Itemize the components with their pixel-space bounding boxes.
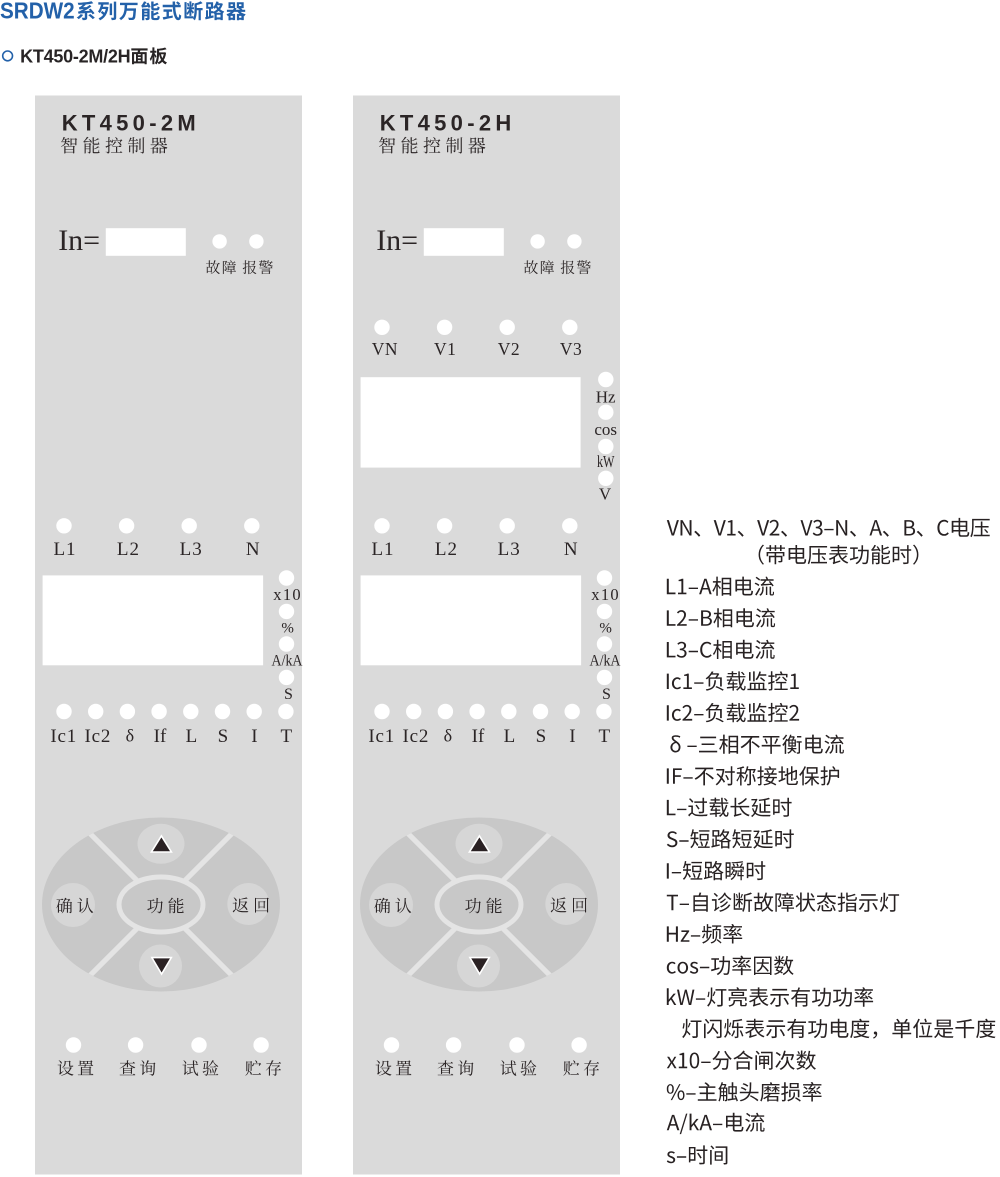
svg-text:V2: V2 (498, 339, 520, 359)
svg-text:KT450-2H: KT450-2H (380, 110, 516, 135)
svg-text:cos: cos (594, 420, 617, 439)
svg-text:V3: V3 (560, 339, 582, 359)
svg-text:KT450-2M/2H: KT450-2M/2H (20, 46, 130, 66)
svg-text:Hz: Hz (596, 387, 616, 406)
svg-text:SRDW2: SRDW2 (0, 0, 75, 24)
svg-text:VN: VN (372, 339, 398, 359)
svg-text:KT450-2M: KT450-2M (62, 110, 200, 135)
svg-text:V: V (599, 485, 612, 504)
svg-text:V1: V1 (434, 339, 456, 359)
svg-text:kW: kW (597, 452, 615, 471)
